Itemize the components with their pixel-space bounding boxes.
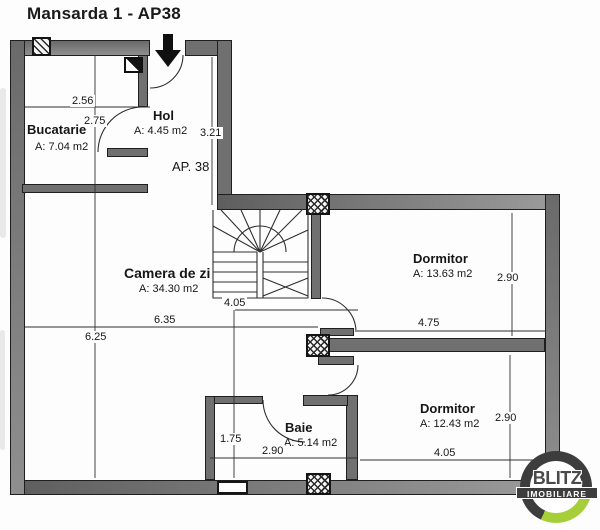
- room-name-dormitor2: Dormitor: [420, 401, 475, 416]
- dim-hol-height: 3.21: [198, 127, 223, 139]
- room-area-camera-de-zi: A: 34.30 m2: [139, 283, 198, 295]
- room-area-dormitor1: A: 13.63 m2: [413, 268, 472, 280]
- dim-living-width: 6.35: [152, 314, 177, 326]
- dim-baie-height: 1.75: [218, 433, 243, 445]
- dim-dorm1-width: 4.75: [416, 317, 441, 329]
- apartment-number-label: AP. 38: [172, 159, 209, 174]
- room-name-bucatarie: Bucatarie: [27, 122, 86, 137]
- agency-logo: BLITZ IMOBILIARE: [514, 447, 600, 530]
- door-arc-dormitor1: [322, 298, 356, 332]
- dim-living-height: 6.25: [83, 331, 108, 343]
- room-area-dormitor2: A: 12.43 m2: [420, 418, 479, 430]
- dim-stair-span: 4.05: [222, 297, 247, 309]
- logo-text-primary: BLITZ: [514, 468, 600, 489]
- door-arc-entrance: [150, 55, 183, 88]
- dim-kitchen-height: 2.75: [82, 115, 107, 127]
- dim-dorm2-height: 2.90: [493, 412, 518, 424]
- dim-kitchen-width: 2.56: [70, 95, 95, 107]
- door-arc-dormitor2: [328, 365, 358, 395]
- room-name-baie: Baie: [285, 420, 312, 435]
- room-name-hol: Hol: [153, 108, 174, 123]
- room-name-dormitor1: Dormitor: [413, 251, 468, 266]
- room-area-hol: A: 4.45 m2: [134, 125, 187, 137]
- staircase: [213, 210, 308, 298]
- room-area-bucatarie: A: 7.04 m2: [35, 141, 88, 153]
- dim-baie-width: 2.90: [260, 445, 285, 457]
- room-name-camera-de-zi: Camera de zi: [124, 265, 210, 281]
- logo-text-secondary: IMOBILIARE: [516, 487, 598, 499]
- dim-dorm1-height: 2.90: [495, 272, 520, 284]
- dim-dorm2-width: 4.05: [432, 447, 457, 459]
- plan-lines-layer: [0, 0, 600, 530]
- floor-plan-canvas: Mansarda 1 - AP38: [0, 0, 600, 530]
- room-area-baie: A: 5.14 m2: [284, 437, 337, 449]
